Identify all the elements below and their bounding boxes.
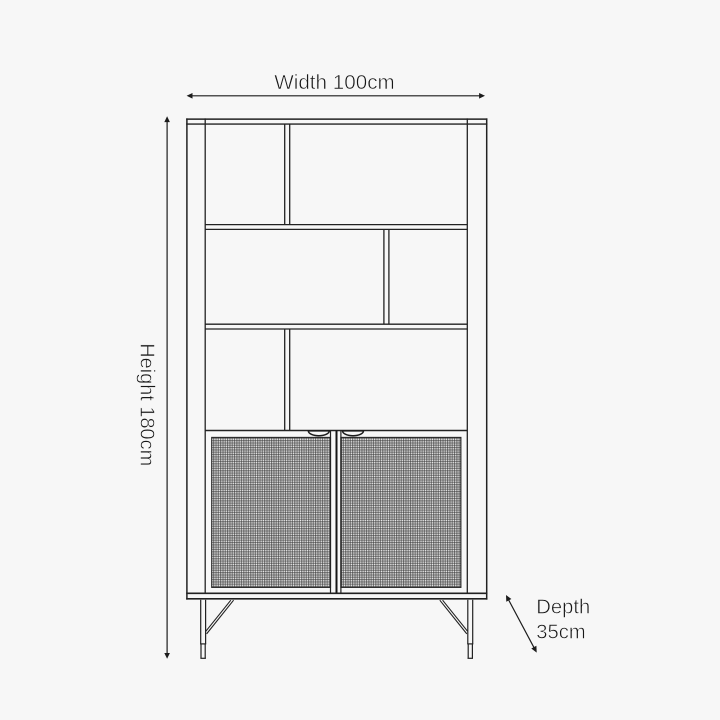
svg-text:Width 100cm: Width 100cm bbox=[274, 71, 395, 94]
svg-text:Depth: Depth bbox=[536, 597, 590, 619]
svg-text:Height 180cm: Height 180cm bbox=[136, 343, 159, 466]
svg-text:35cm: 35cm bbox=[536, 621, 585, 643]
